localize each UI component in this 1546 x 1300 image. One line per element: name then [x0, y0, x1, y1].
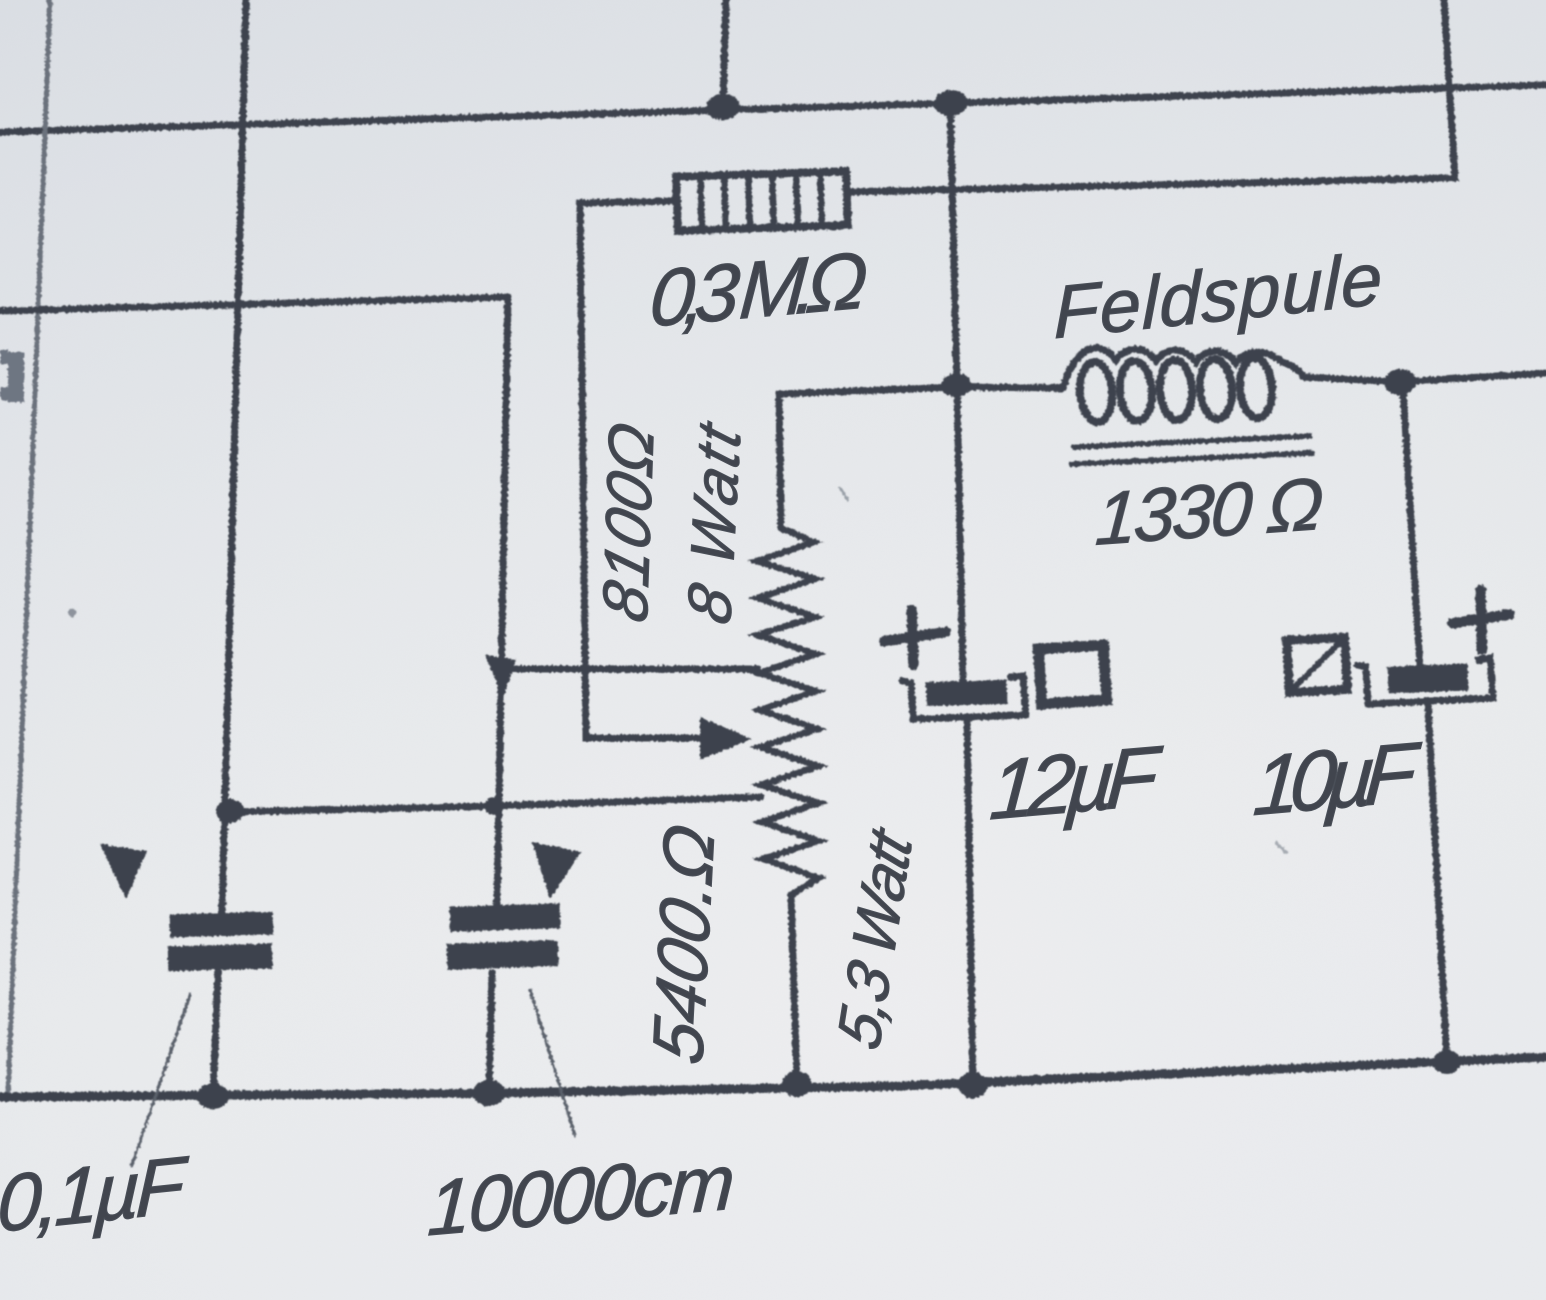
svg-text:5400.Ω: 5400.Ω [638, 816, 729, 1072]
svg-text:12µF: 12µF [987, 727, 1165, 837]
svg-text:8 Watt: 8 Watt [676, 414, 754, 632]
svg-text:1330 Ω: 1330 Ω [1093, 462, 1326, 561]
svg-text:10µF: 10µF [1251, 723, 1424, 833]
svg-text:8100Ω: 8100Ω [589, 414, 667, 629]
